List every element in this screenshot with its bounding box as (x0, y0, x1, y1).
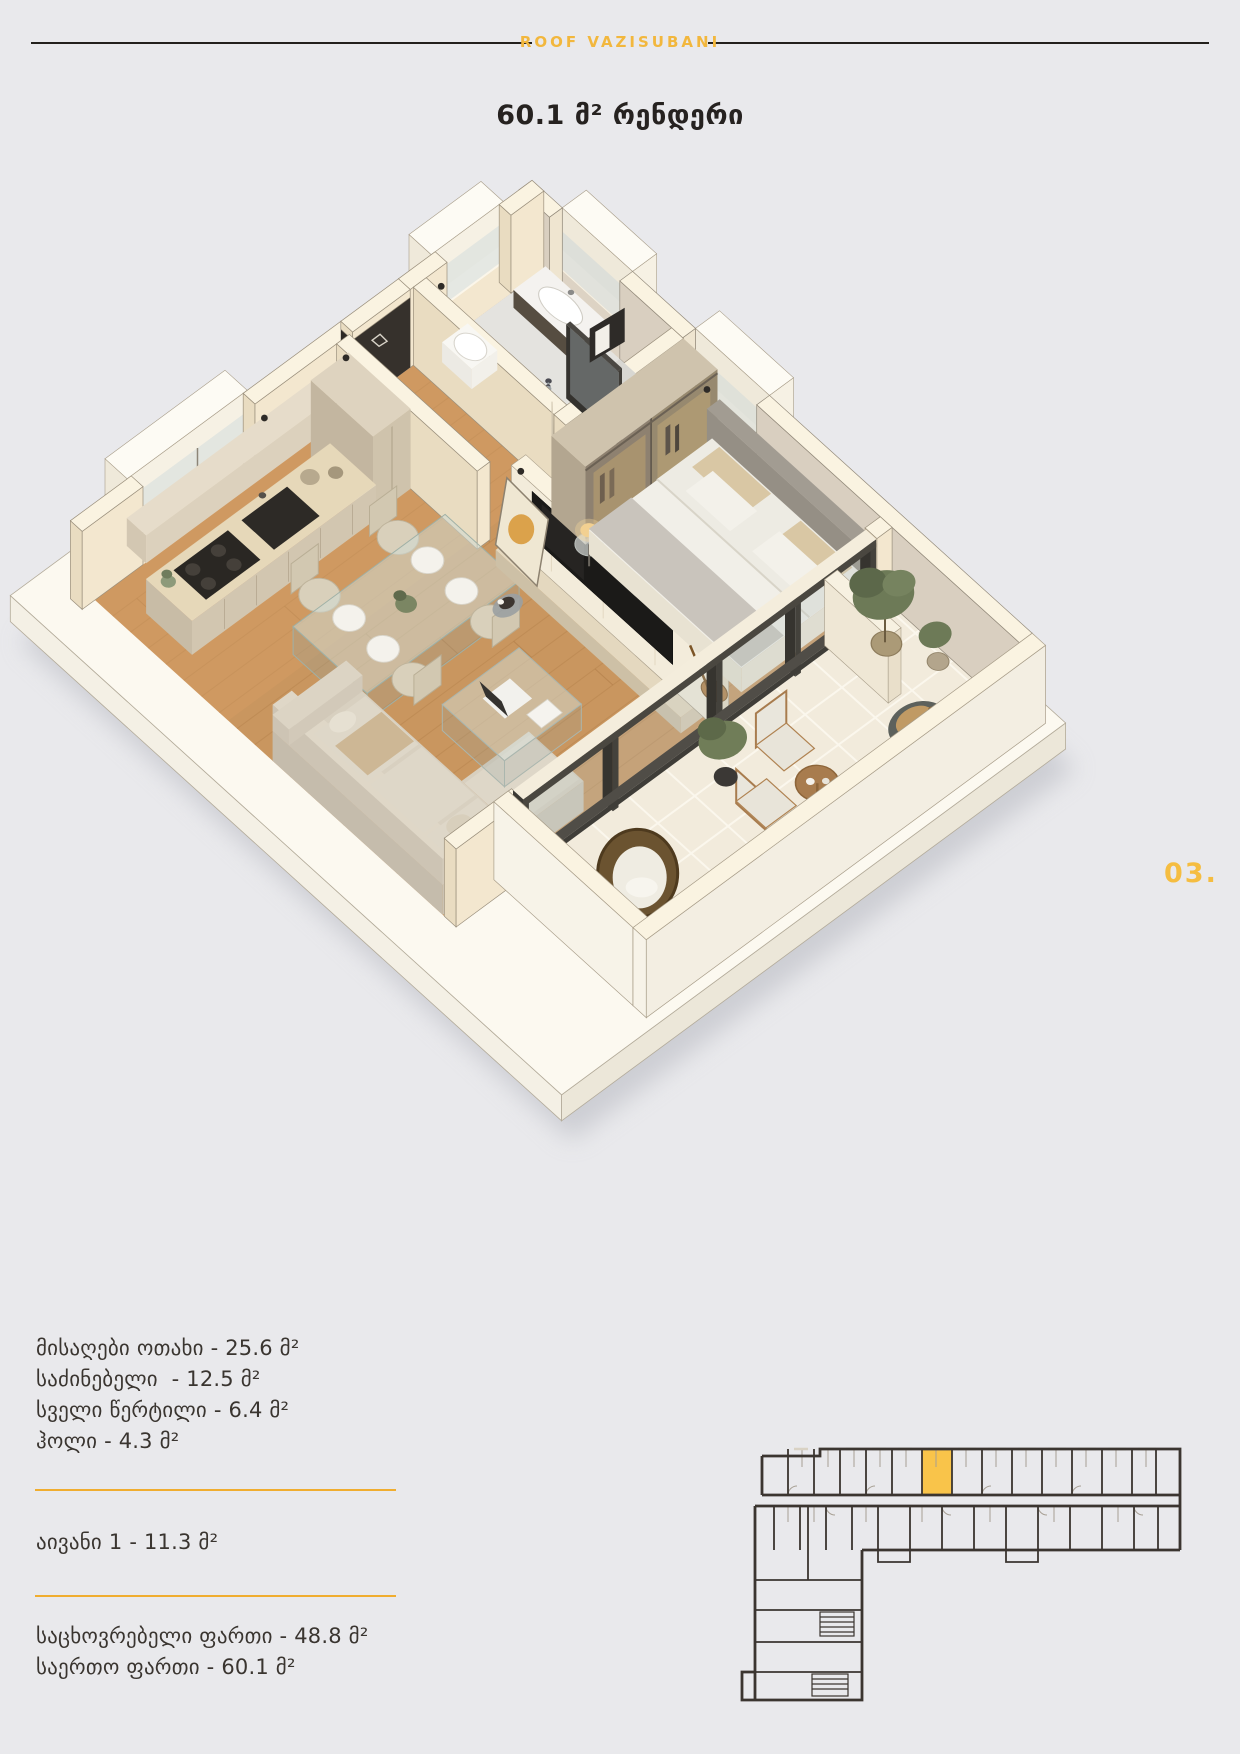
area-bedroom: საძინებელი - 12.5 მ² (36, 1367, 261, 1391)
floorplan-partitions (755, 1449, 1158, 1672)
divider-line-2 (35, 1595, 396, 1597)
building-floorplan (670, 1280, 1190, 1720)
area-living-total: საცხოვრებელი ფართი - 48.8 მ² (36, 1624, 368, 1648)
floorplan-interior-lines (770, 1449, 1146, 1672)
area-bathroom: სველი წერტილი - 6.4 მ² (36, 1398, 289, 1422)
brochure-page: ROOF VAZISUBANI 60.1 მ² რენდერი 03. მისა… (0, 0, 1240, 1754)
area-balcony: აივანი 1 - 11.3 მ² (36, 1530, 218, 1554)
area-hall: ჰოლი - 4.3 მ² (36, 1429, 179, 1453)
floorplan-stairs (812, 1612, 854, 1696)
floorplan-unit-highlight (922, 1450, 952, 1495)
area-living-room: მისაღები ოთახი - 25.6 მ² (36, 1336, 299, 1360)
page-number: 03. (1164, 858, 1218, 889)
divider-line-1 (35, 1489, 396, 1491)
area-total: საერთო ფართი - 60.1 მ² (36, 1655, 296, 1679)
